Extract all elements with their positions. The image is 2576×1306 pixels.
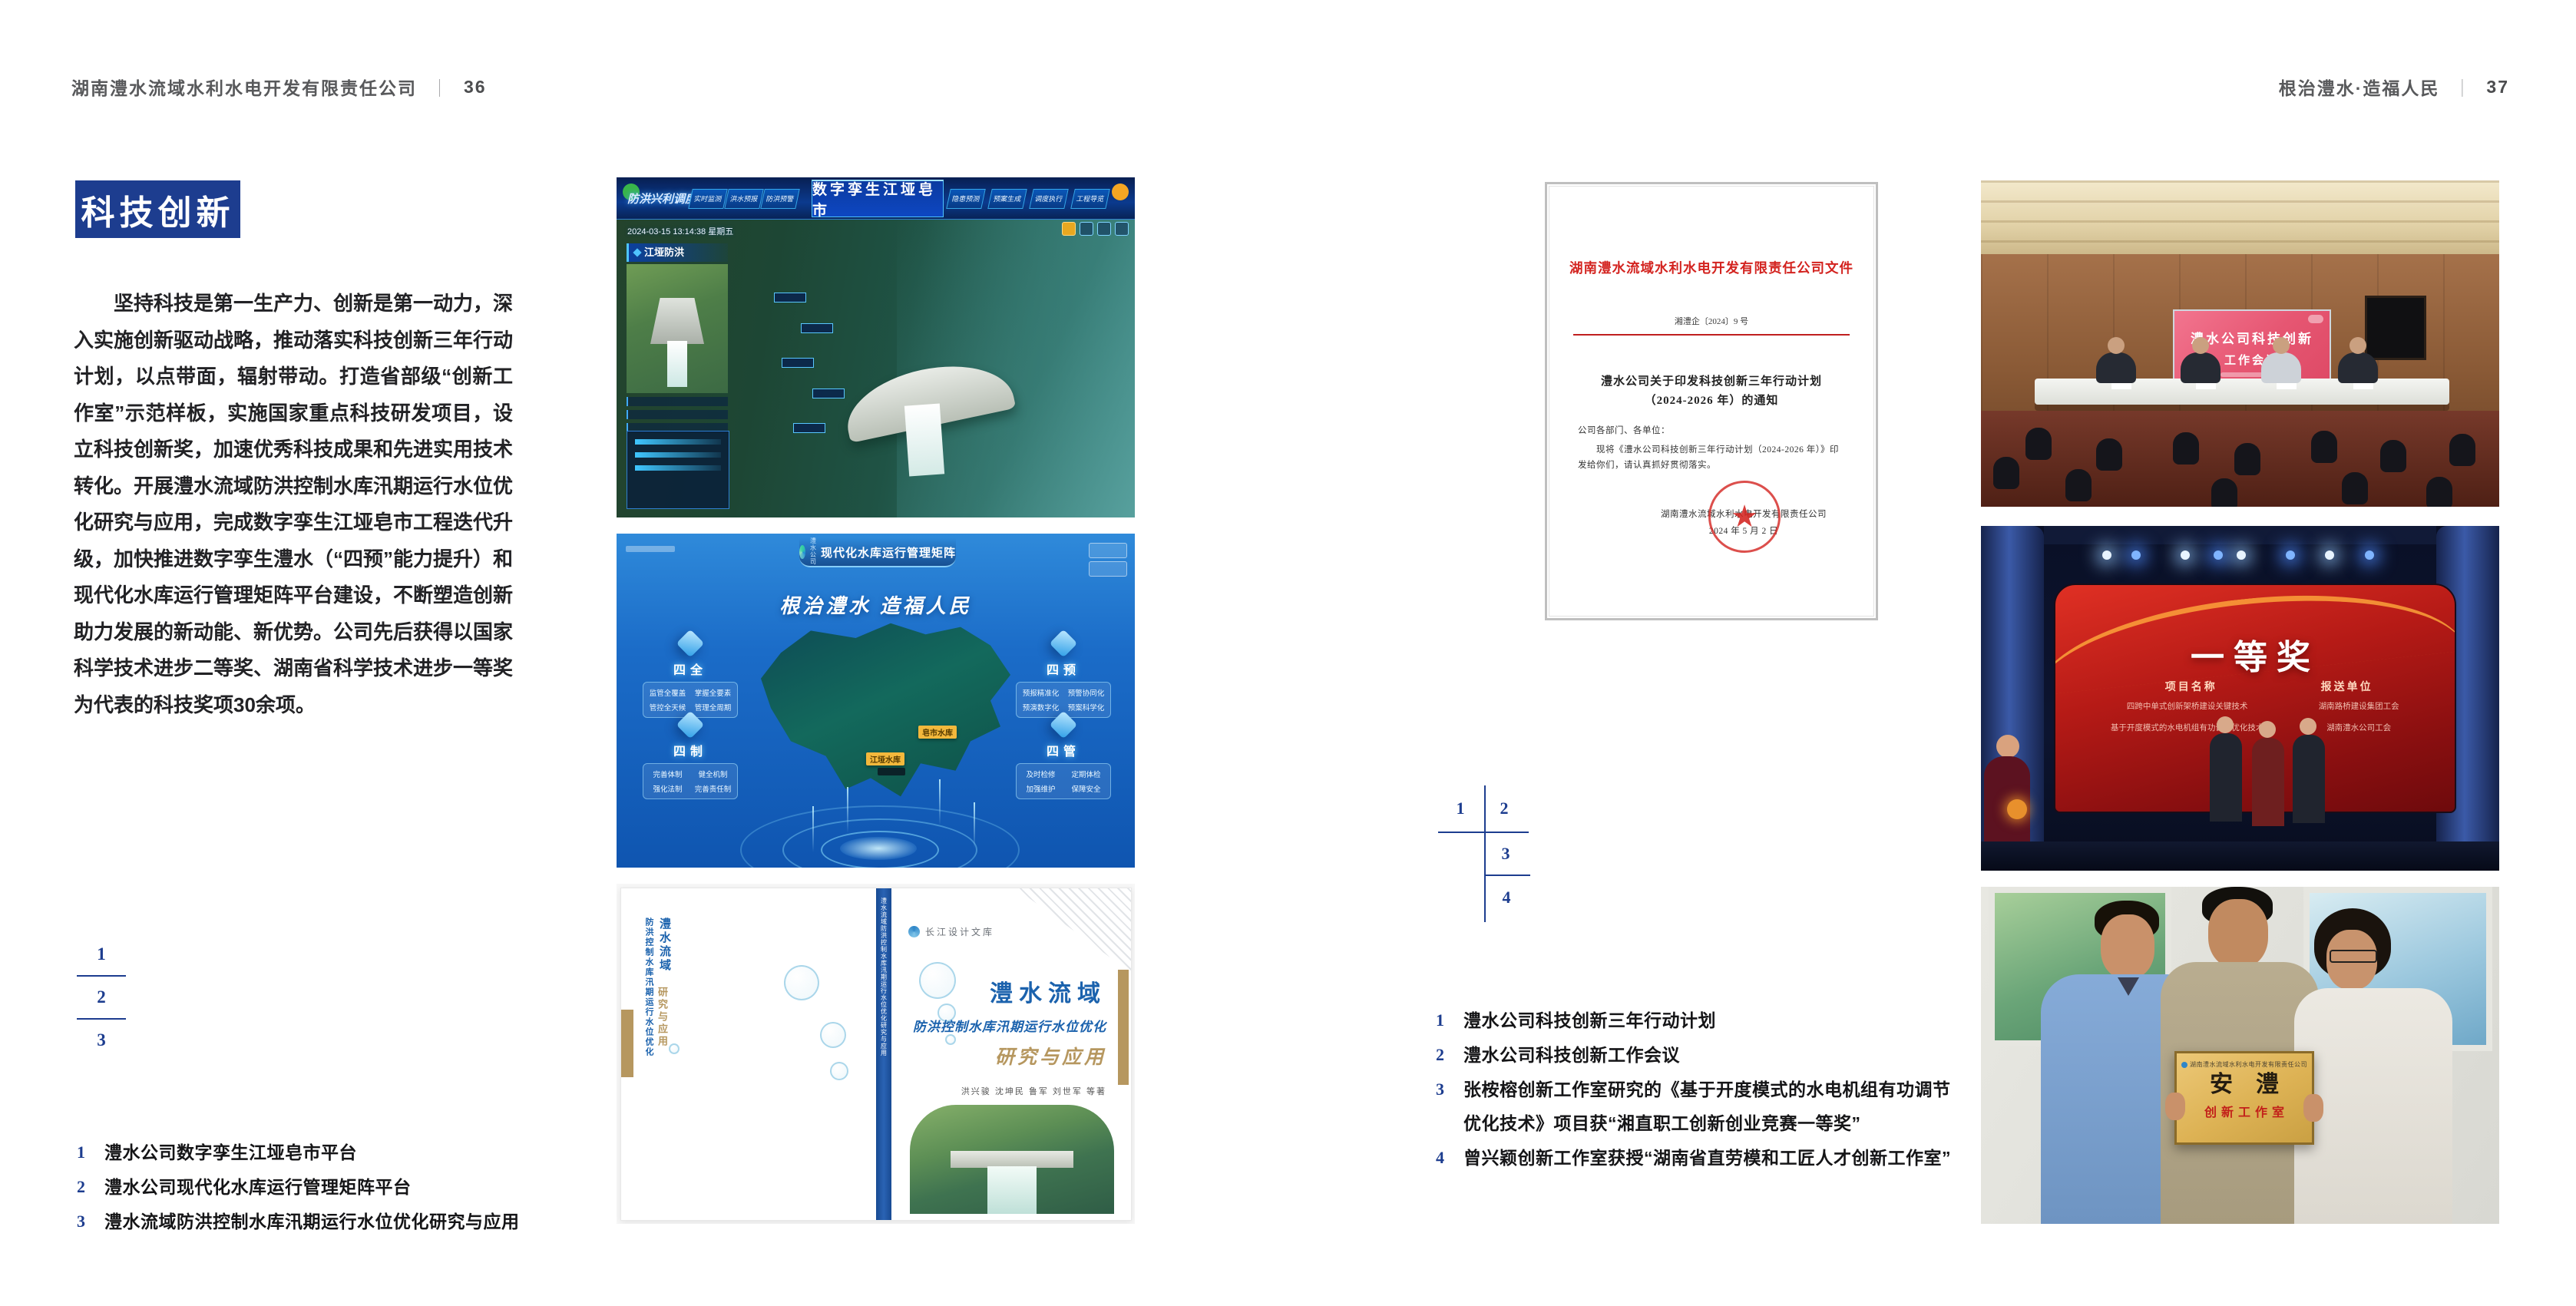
tab-project-tour: 工程导览: [1070, 189, 1110, 209]
innovation-studio-plaque: 湖南澧水流域水利水电开发有限责任公司 安澧 创新工作室: [2174, 1051, 2314, 1145]
award-title: 一等奖: [2055, 630, 2455, 679]
map-label-jiangya: 江垭水库: [866, 752, 904, 765]
section-title-badge: 科技创新: [75, 180, 240, 238]
document-subject-line2: （2024-2026 年）的通知: [1547, 392, 1876, 408]
document-body-line1: 现将《澧水公司科技创新三年行动计划（2024-2026 年）》印: [1596, 443, 1839, 455]
award-row-project: 四跨中单式创新架桥建设关键技术: [2072, 700, 2303, 712]
seal-star-icon: ★: [1731, 501, 1758, 532]
person-left-face: [2101, 914, 2154, 979]
caption-text-line1: 张桉榕创新工作室研究的《基于开度模式的水电机组有功调节: [1463, 1078, 1951, 1101]
head-table: [2035, 379, 2449, 405]
screen-logo-icon: [2308, 315, 2323, 323]
publisher-logo-icon: [908, 926, 920, 937]
map-label-dark: [878, 768, 905, 775]
awardee-silhouette: [2252, 738, 2284, 826]
map-label-zaoshi: 皂市水库: [918, 726, 957, 739]
audience-member: [2065, 469, 2092, 501]
dam-shape: [650, 298, 704, 344]
tab-plan-generation: 预案生成: [987, 189, 1027, 209]
ceiling: [1981, 180, 2499, 254]
caption-text: 澧水流域防洪控制水库汛期运行水位优化研究与应用: [104, 1210, 520, 1233]
map-label-chip: [774, 293, 806, 303]
company-logo-name: 澧水公司: [810, 538, 816, 565]
dashboard-title: 数字孪生江垭皂市: [812, 180, 944, 217]
panel-item: 强化法制: [646, 783, 689, 794]
light-beam: [939, 779, 941, 825]
awardee-silhouette: [2293, 735, 2325, 823]
panel-sizhi: 四制 完善体制 健全机制 强化法制 完善责任制: [643, 715, 738, 799]
document-subject-line1: 澧水公司关于印发科技创新三年行动计划: [1547, 372, 1876, 388]
audience-member: [2234, 443, 2260, 475]
panel-name: 四管: [1016, 741, 1111, 759]
caption-list-left: 1 澧水公司数字孪生江垭皂市平台 2 澧水公司现代化水库运行管理矩阵平台 3 澧…: [77, 1141, 537, 1245]
light-beam: [974, 802, 975, 848]
front-cover: 长江设计文库 澧水流域 防洪控制水库汛期运行水位优化 研究与应用 洪兴骏 沈坤民…: [891, 888, 1131, 1220]
tab-risk-prediction: 隐患预测: [946, 189, 986, 209]
panel-name: 四预: [1016, 660, 1111, 678]
stage-light: [2131, 551, 2141, 560]
ripple-core-glow: [840, 837, 917, 860]
panel-name: 四全: [643, 660, 738, 678]
stage-light: [2181, 551, 2190, 560]
awardee-silhouette: [2210, 733, 2242, 822]
panel-item: 监管全覆盖: [646, 687, 689, 698]
book-spine: 澧水流域防洪控制水库汛期运行水位优化研究与应用: [876, 888, 891, 1220]
document-number: 湘澧企〔2024〕9 号: [1547, 315, 1876, 327]
caption-number: 3: [77, 1210, 94, 1233]
name-card: [2277, 383, 2297, 389]
book-title-main: 澧水流域: [990, 974, 1106, 1008]
panel-siyu: 四预 预报精准化 预警协同化 预演数字化 预案科学化: [1016, 633, 1111, 718]
page-number-right: 37: [2486, 77, 2509, 98]
book-authors: 洪兴骏 沈坤民 鲁军 刘世军 等著: [961, 1085, 1106, 1097]
spine-title: 澧水流域防洪控制水库汛期运行水位优化研究与应用: [880, 898, 888, 1220]
light-beam: [847, 787, 848, 833]
panel-item: 掌握全要素: [691, 687, 735, 698]
figure-index-divider: [77, 975, 126, 977]
hatch-decoration: [1016, 888, 1131, 973]
figure-index-number: 1: [1452, 798, 1469, 818]
panel-item: 及时检修: [1019, 769, 1063, 779]
award-row-unit: 湖南路桥建设集团工会: [2287, 700, 2431, 712]
panel-speaker: [2096, 352, 2136, 383]
diamond-icon: [676, 711, 705, 739]
diamond-icon: [1050, 630, 1078, 658]
mini-chart-panel: [627, 431, 729, 509]
spillway-shape: [987, 1166, 1037, 1214]
figure-digital-twin-dashboard: 防洪兴利调度 实时监测 洪水预报 防洪预警 数字孪生江垭皂市 隐患预测 预案生成…: [617, 177, 1135, 517]
hand: [2165, 1093, 2185, 1120]
map-label-chip: [782, 358, 814, 368]
audience-member: [2211, 478, 2237, 507]
panel-item: 加强维护: [1019, 783, 1063, 794]
caption-text: 澧水公司科技创新工作会议: [1463, 1043, 1680, 1066]
front-tan-bar: [1118, 970, 1129, 1085]
data-row: [627, 410, 728, 419]
audience-member: [2096, 438, 2122, 471]
book-title-sub: 防洪控制水库汛期运行水位优化: [904, 1016, 1106, 1035]
stage-light: [2286, 551, 2295, 560]
timestamp: 2024-03-15 13:14:38 星期五: [627, 225, 733, 237]
figure-grid-vline: [1484, 785, 1486, 922]
weather-icon: [1112, 184, 1129, 200]
panel-title: 江垭防洪: [627, 243, 728, 262]
mode-label: 防洪兴利调度: [627, 190, 696, 207]
plaque-name: 安澧: [2177, 1073, 2312, 1096]
panel-item: 管理全周期: [691, 702, 735, 713]
figure-grid-hline: [1484, 875, 1530, 876]
column-header-project: 项目名称: [2111, 679, 2271, 694]
slogan-calligraphy: 根治澧水 造福人民: [617, 590, 1135, 619]
chart-bar: [635, 465, 721, 471]
chart-bar: [635, 452, 721, 458]
figure-management-matrix: 澧水公司 现代化水库运行管理矩阵 根治澧水 造福人民 四全 监管全覆盖 掌握全要…: [617, 534, 1135, 868]
motto: 根治澧水·造福人民: [2279, 74, 2440, 100]
series-name: 长江设计文库: [925, 925, 994, 938]
person-center-face: [2208, 899, 2268, 968]
data-row: [627, 397, 728, 406]
plaque-org-line: 湖南澧水流域水利水电开发有限责任公司: [2177, 1060, 2312, 1069]
caption-number: 3: [1436, 1078, 1453, 1101]
figure-index-divider: [77, 1018, 126, 1020]
panel-items: 完善体制 健全机制 强化法制 完善责任制: [643, 763, 738, 799]
document-org-title: 湖南澧水流域水利水电开发有限责任公司文件: [1559, 258, 1863, 277]
settings-icon: [1115, 222, 1129, 236]
panel-item: 完善体制: [646, 769, 689, 779]
document-salutation: 公司各部门、各单位：: [1578, 424, 1670, 436]
stage-floor: [1981, 841, 2499, 871]
name-card: [2196, 383, 2216, 389]
caption-number: 1: [1436, 1009, 1453, 1032]
page-header-left: 湖南澧水流域水利水电开发有限责任公司 ｜ 36: [71, 74, 487, 100]
header-divider: ｜: [431, 74, 450, 100]
water-bubble: [830, 1062, 848, 1080]
plaque-subtitle: 创新工作室: [2177, 1102, 2312, 1120]
name-card: [2111, 383, 2131, 389]
caption-text-line2: 优化技术》项目获“湘直职工创新创业竞赛一等奖”: [1463, 1112, 1951, 1135]
book-cover-area: 澧水流域 防洪控制水库汛期运行水位优化 研究与应用 澧水流域防洪控制水库汛期运行…: [620, 888, 1132, 1221]
figure-index-number: 3: [77, 1029, 126, 1052]
caption-item: 3 澧水流域防洪控制水库汛期运行水位优化研究与应用: [77, 1210, 537, 1233]
figure-official-document: 湖南澧水流域水利水电开发有限责任公司文件 湘澧企〔2024〕9 号 澧水公司关于…: [1545, 182, 1878, 620]
back-title-sub: 防洪控制水库汛期运行水位优化: [643, 918, 655, 1057]
audience-member: [2380, 440, 2406, 472]
audience-member: [2426, 477, 2452, 507]
matrix-header: 澧水公司 现代化水库运行管理矩阵: [799, 538, 956, 567]
panel-item: 管控全天候: [646, 702, 689, 713]
caption-item: 2 澧水公司科技创新工作会议: [1436, 1043, 1958, 1066]
document-red-rule: [1573, 334, 1850, 336]
watershed-map: [761, 620, 1010, 804]
panel-item: 预演数字化: [1019, 702, 1063, 713]
host-head: [1996, 735, 2019, 758]
audience-member: [2342, 472, 2368, 504]
audience-member: [2173, 432, 2199, 465]
caption-item: 2 澧水公司现代化水库运行管理矩阵平台: [77, 1175, 537, 1199]
caption-item: 1 澧水公司科技创新三年行动计划: [1436, 1009, 1958, 1032]
panel-name: 四制: [643, 741, 738, 759]
side-panel-jiangya-flood: 江垭防洪: [627, 243, 728, 432]
panel-item: 预报精准化: [1019, 687, 1063, 698]
water-bubble: [945, 1034, 956, 1045]
figure-book-cover: 澧水流域 防洪控制水库汛期运行水位优化 研究与应用 澧水流域防洪控制水库汛期运行…: [617, 884, 1135, 1224]
caption-text: 曾兴颖创新工作室获授“湖南省直劳模和工匠人才创新工作室”: [1463, 1146, 1951, 1169]
figure-index-number: 4: [1498, 888, 1515, 908]
panel-item: 预案科学化: [1064, 702, 1108, 713]
figure-index-number: 2: [1496, 798, 1513, 818]
caption-number: 1: [77, 1141, 94, 1164]
audience-member: [1993, 457, 2019, 489]
back-cover-tan-tab: [621, 1010, 633, 1077]
audience-member: [2311, 431, 2337, 463]
stage-light: [2365, 551, 2374, 560]
panel-siguan: 四管 及时检修 定期体检 加强维护 保障安全: [1016, 715, 1111, 799]
panel-item: 定期体检: [1064, 769, 1108, 779]
dam-photo-thumbnail: [627, 264, 728, 393]
header-divider: ｜: [2453, 74, 2472, 100]
cover-dam-photo: [910, 1105, 1114, 1214]
figure-award-ceremony-photo: 一等奖 项目名称 报送单位 四跨中单式创新架桥建设关键技术 湖南路桥建设集团工会…: [1981, 526, 2499, 871]
caption-item: 4 曾兴颖创新工作室获授“湖南省直劳模和工匠人才创新工作室”: [1436, 1146, 1958, 1169]
page-number-left: 36: [464, 77, 487, 98]
user-icon: [1062, 222, 1076, 236]
figure-grid-hline: [1438, 832, 1529, 833]
map-label-chip: [793, 423, 825, 433]
series-row: 长江设计文库: [908, 925, 994, 938]
tab-flood-warning: 防洪预警: [760, 189, 800, 209]
figure-meeting-photo: 澧水公司科技创新 工作会议: [1981, 180, 2499, 507]
column-header-unit: 报送单位: [2279, 679, 2415, 694]
water-bubble: [919, 962, 956, 999]
diamond-icon: [676, 630, 705, 658]
stage-light: [2214, 551, 2223, 560]
datetime-placeholder: [626, 546, 675, 552]
water-bubble: [669, 1043, 680, 1054]
locate-icon: [1097, 222, 1111, 236]
panel-item: 健全机制: [691, 769, 735, 779]
body-paragraph: 坚持科技是第一生产力、创新是第一动力，深入实施创新驱动战略，推动落实科技创新三年…: [74, 286, 513, 723]
panel-siquan: 四全 监管全覆盖 掌握全要素 管控全天候 管理全周期: [643, 633, 738, 718]
caption-text: 澧水公司现代化水库运行管理矩阵平台: [104, 1175, 412, 1199]
caption-list-right: 1 澧水公司科技创新三年行动计划 2 澧水公司科技创新工作会议 3 张桉榕创新工…: [1436, 1009, 1958, 1181]
awardee-head: [2217, 716, 2234, 733]
panel-speaker: [2261, 352, 2301, 383]
audience-member: [2025, 428, 2052, 460]
toolbar-chip: [1089, 543, 1127, 558]
water-bubble: [820, 1022, 846, 1048]
light-beam: [812, 806, 814, 852]
chart-bar: [635, 439, 721, 445]
tab-realtime-monitoring: 实时监测: [688, 189, 728, 209]
panel-items: 及时检修 定期体检 加强维护 保障安全: [1016, 763, 1111, 799]
company-name: 湖南澧水流域水利水电开发有限责任公司: [71, 74, 417, 100]
stage-light: [2325, 551, 2334, 560]
back-title-main: 澧水流域: [656, 918, 673, 973]
map-label-chip: [812, 388, 845, 398]
panel-item: 保障安全: [1064, 783, 1108, 794]
caption-number: 2: [77, 1175, 94, 1199]
layers-icon: [1080, 222, 1093, 236]
caption-number: 2: [1436, 1043, 1453, 1066]
document-body-line2: 发给你们，请认真抓好贯彻落实。: [1578, 458, 1716, 471]
tab-dispatch-execution: 调度执行: [1029, 189, 1069, 209]
panel-speaker: [2338, 352, 2378, 383]
main-spillway: [904, 404, 944, 477]
stage-truss: [2044, 526, 2436, 544]
caption-number: 4: [1436, 1146, 1453, 1169]
matrix-title: 现代化水库运行管理矩阵: [821, 544, 956, 560]
company-logo-icon: [799, 545, 805, 559]
map-label-chip: [801, 323, 833, 333]
toolbar-chip: [1089, 561, 1127, 577]
figure-index-number: 1: [77, 943, 126, 966]
awardee-head: [2259, 721, 2276, 738]
caption-text: 澧水公司科技创新三年行动计划: [1463, 1009, 1716, 1032]
bouquet: [2007, 799, 2027, 819]
caption-text: 张桉榕创新工作室研究的《基于开度模式的水电机组有功调节 优化技术》项目获“湘直职…: [1463, 1078, 1951, 1135]
caption-item: 3 张桉榕创新工作室研究的《基于开度模式的水电机组有功调节 优化技术》项目获“湘…: [1436, 1078, 1958, 1135]
audience-member: [2449, 434, 2475, 466]
panel-item: 完善责任制: [691, 783, 735, 794]
official-seal: ★: [1708, 481, 1781, 553]
awardee-head: [2300, 718, 2316, 735]
wall-tv-screen: [2365, 296, 2426, 360]
figure-index-number: 3: [1497, 844, 1514, 864]
magazine-spread: 湖南澧水流域水利水电开发有限责任公司 ｜ 36 根治澧水·造福人民 ｜ 37 科…: [0, 0, 2576, 1306]
name-card: [2353, 383, 2373, 389]
glasses: [2330, 950, 2377, 963]
stage-light: [2102, 551, 2111, 560]
figure-plaque-group-photo: 湖南澧水流域水利水电开发有限责任公司 安澧 创新工作室: [1981, 887, 2499, 1224]
stage-light: [2237, 551, 2246, 560]
diamond-icon: [1050, 711, 1078, 739]
figure-index-number: 2: [77, 986, 126, 1009]
toolbar-icons: [1062, 222, 1129, 236]
water-bubble: [784, 965, 819, 1000]
back-title-accent: 研究与应用: [655, 987, 670, 1048]
page-header-right: 根治澧水·造福人民 ｜ 37: [2279, 74, 2509, 100]
panel-speaker: [2181, 352, 2221, 383]
panel-item: 预警协同化: [1064, 687, 1108, 698]
spillway-shape: [667, 341, 687, 387]
tab-flood-forecast: 洪水预报: [724, 189, 764, 209]
figure-index-left: 1 2 3: [77, 943, 126, 1052]
book-title-accent: 研究与应用: [995, 1042, 1106, 1070]
caption-text: 澧水公司数字孪生江垭皂市平台: [104, 1141, 357, 1164]
caption-item: 1 澧水公司数字孪生江垭皂市平台: [77, 1141, 537, 1164]
hand: [2303, 1094, 2323, 1122]
